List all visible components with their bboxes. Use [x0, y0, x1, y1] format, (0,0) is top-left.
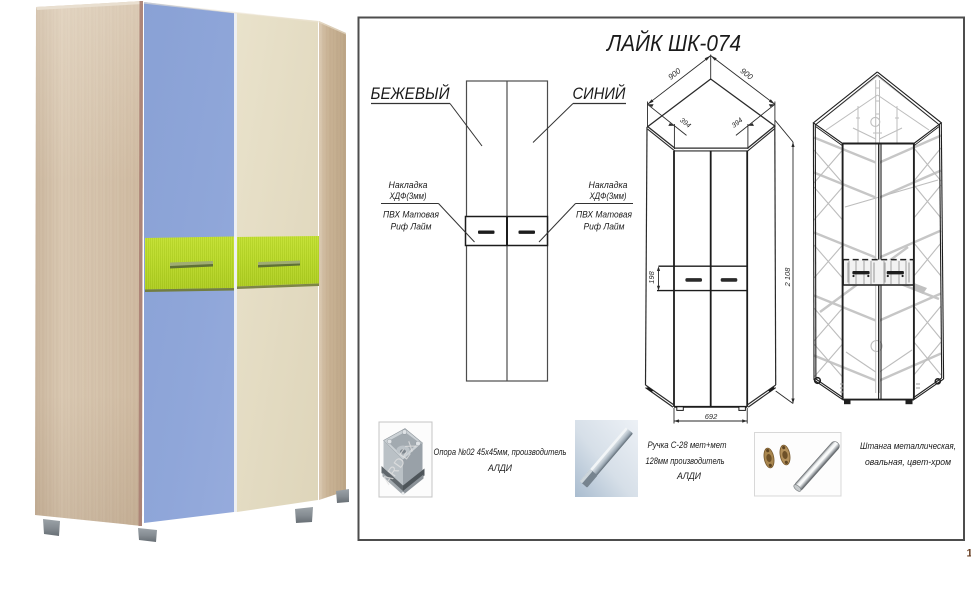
svg-text:198: 198 [647, 270, 656, 283]
svg-text:Накладка: Накладка [589, 180, 628, 190]
svg-text:Опора №02 45х45мм, производите: Опора №02 45х45мм, производитель [434, 447, 567, 458]
svg-text:Накладка: Накладка [389, 180, 428, 190]
svg-text:БЕЖЕВЫЙ: БЕЖЕВЫЙ [371, 84, 450, 103]
svg-text:692: 692 [705, 412, 718, 421]
svg-text:128мм производитель: 128мм производитель [646, 456, 725, 467]
svg-text:АЛДИ: АЛДИ [676, 471, 701, 482]
svg-text:Штанга металлическая,: Штанга металлическая, [860, 441, 956, 452]
svg-text:Ручка С-28 мет+мет: Ручка С-28 мет+мет [648, 440, 727, 451]
svg-text:ПВХ Матовая: ПВХ Матовая [383, 210, 439, 220]
svg-text:СИНИЙ: СИНИЙ [573, 84, 626, 103]
svg-text:ПВХ Матовая: ПВХ Матовая [576, 210, 632, 220]
svg-text:1: 1 [966, 548, 971, 560]
svg-text:ХДФ(3мм): ХДФ(3мм) [589, 191, 627, 201]
svg-text:2 108: 2 108 [783, 267, 792, 288]
svg-text:ХДФ(3мм): ХДФ(3мм) [389, 191, 427, 201]
svg-text:Риф Лайм: Риф Лайм [584, 222, 625, 232]
svg-text:овальная, цвет-хром: овальная, цвет-хром [865, 457, 951, 468]
svg-text:ЛАЙК ШК-074: ЛАЙК ШК-074 [605, 29, 741, 56]
svg-text:Риф Лайм: Риф Лайм [391, 222, 432, 232]
svg-text:АЛДИ: АЛДИ [487, 463, 512, 474]
